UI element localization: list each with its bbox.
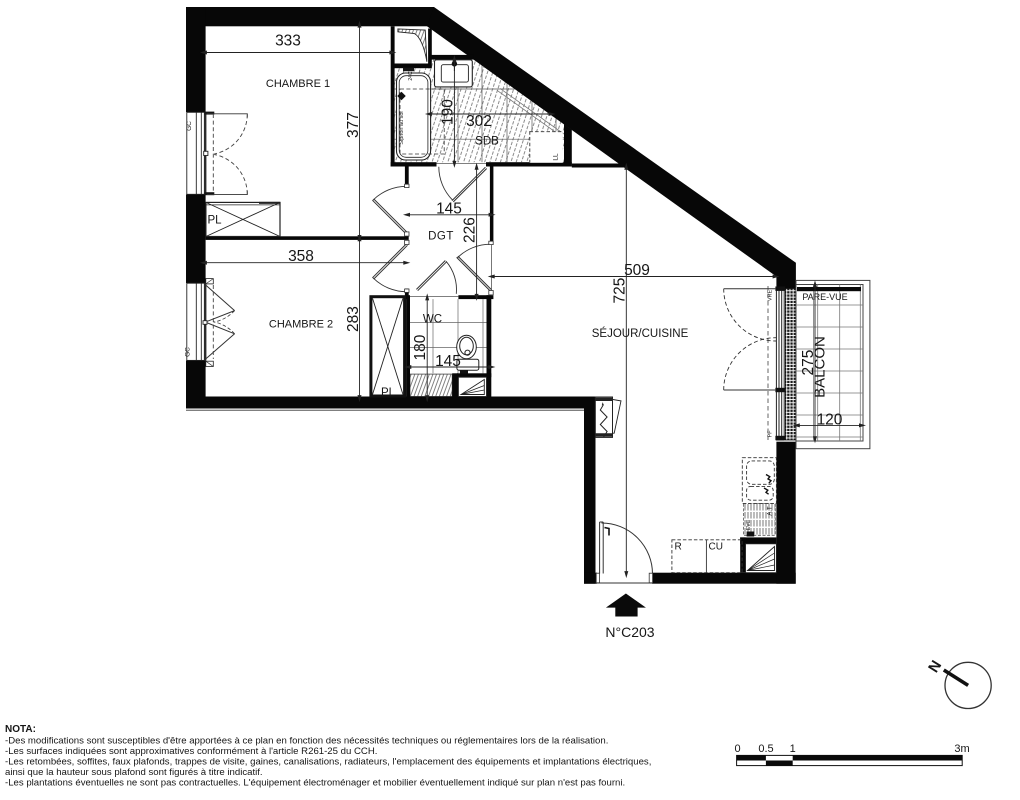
svg-text:180: 180 — [412, 334, 429, 360]
svg-text:333: 333 — [275, 33, 301, 50]
svg-text:0: 0 — [734, 743, 740, 755]
svg-text:145: 145 — [436, 201, 462, 218]
svg-text:725: 725 — [611, 278, 628, 304]
svg-text:R: R — [675, 542, 682, 553]
svg-text:24C: 24C — [408, 71, 414, 81]
svg-text:SÉJOUR/CUISINE: SÉJOUR/CUISINE — [592, 327, 689, 340]
svg-text:A.T: A.T — [768, 506, 774, 516]
svg-text:PL: PL — [381, 387, 396, 399]
svg-text:226: 226 — [462, 217, 479, 243]
svg-text:283: 283 — [345, 306, 362, 332]
svg-text:CHAMBRE 2: CHAMBRE 2 — [269, 319, 333, 331]
svg-text:GC: GC — [185, 347, 192, 357]
svg-text:GC: GC — [186, 121, 193, 131]
svg-text:LL: LL — [553, 153, 560, 161]
svg-text:120: 120 — [817, 412, 843, 429]
svg-text:377: 377 — [345, 112, 362, 138]
svg-text:N°C203: N°C203 — [605, 624, 654, 640]
svg-text:3m: 3m — [954, 743, 969, 755]
svg-text:CHAMBRE 1: CHAMBRE 1 — [266, 78, 330, 90]
svg-text:Siphon au sol: Siphon au sol — [399, 111, 405, 144]
svg-text:PL: PL — [208, 215, 223, 227]
svg-text:NOTA:: NOTA: — [5, 724, 36, 735]
svg-text:358: 358 — [288, 248, 314, 265]
svg-text:0.5: 0.5 — [758, 743, 773, 755]
svg-text:1: 1 — [790, 743, 796, 755]
svg-text:VRE: VRE — [768, 290, 774, 302]
svg-text:-Les surfaces indiquées sont a: -Les surfaces indiquées sont approximati… — [5, 746, 377, 757]
svg-text:-Les plantations éventuelles n: -Les plantations éventuelles ne sont pas… — [5, 778, 625, 789]
svg-text:EVC: EVC — [746, 519, 752, 530]
svg-text:190: 190 — [439, 99, 456, 125]
svg-text:BALCON: BALCON — [812, 336, 829, 398]
svg-text:145: 145 — [435, 353, 461, 370]
svg-text:PARE-VUE: PARE-VUE — [802, 292, 847, 302]
svg-text:SDB: SDB — [475, 136, 499, 148]
svg-text:PF: PF — [768, 430, 774, 438]
svg-text:509: 509 — [624, 262, 650, 279]
svg-text:-Les retombées, soffites, faux: -Les retombées, soffites, faux plafonds,… — [5, 757, 651, 768]
svg-text:WC: WC — [423, 314, 442, 326]
svg-text:302: 302 — [466, 113, 492, 130]
svg-text:DGT: DGT — [428, 231, 454, 243]
svg-text:-Des modifications sont suscep: -Des modifications sont susceptibles d'ê… — [5, 736, 608, 747]
svg-text:ainsi que la hauteur sous plaf: ainsi que la hauteur sous plafond sont f… — [5, 767, 263, 778]
svg-text:CU: CU — [709, 542, 723, 553]
